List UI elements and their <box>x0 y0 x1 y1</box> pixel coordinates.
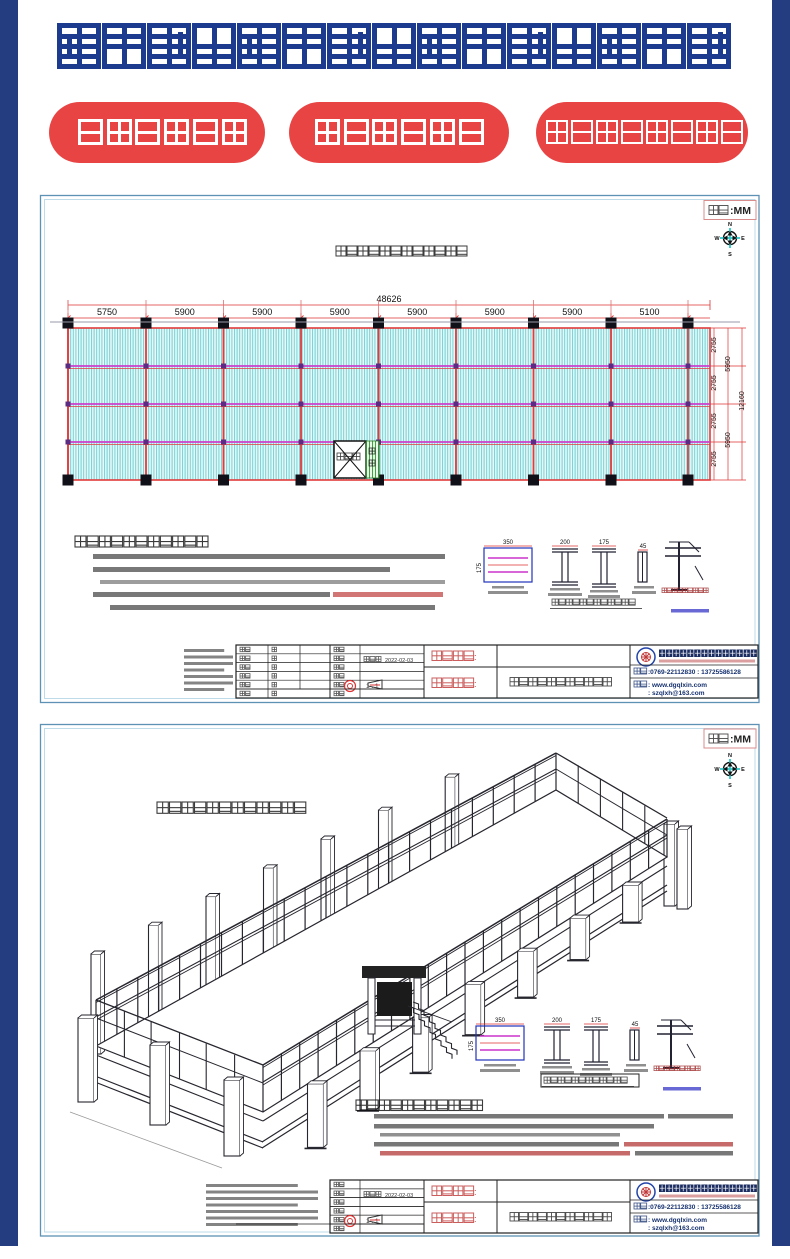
svg-text:5900: 5900 <box>485 307 505 317</box>
svg-text:W: W <box>714 236 720 242</box>
svg-text::MM: :MM <box>730 205 751 217</box>
svg-text:12160: 12160 <box>739 391 746 411</box>
svg-text:175: 175 <box>477 562 483 573</box>
svg-text:: szqlxh@163.com: : szqlxh@163.com <box>648 1225 705 1232</box>
svg-text:2755: 2755 <box>711 413 718 429</box>
svg-text:E: E <box>741 767 745 773</box>
svg-text:S: S <box>728 783 732 789</box>
svg-text::: : <box>474 1187 477 1197</box>
svg-text:S: S <box>728 252 732 258</box>
svg-text:: www.dgqlxin.com: : www.dgqlxin.com <box>648 682 707 689</box>
svg-text:5900: 5900 <box>330 307 350 317</box>
svg-text:E: E <box>741 236 745 242</box>
svg-text::: : <box>474 652 477 662</box>
svg-text:200: 200 <box>552 1018 563 1024</box>
svg-text:: www.dgqlxin.com: : www.dgqlxin.com <box>648 1217 707 1224</box>
svg-text:5950: 5950 <box>725 356 732 372</box>
svg-text::: : <box>474 679 477 689</box>
svg-text:2022-02-03: 2022-02-03 <box>385 1193 413 1199</box>
svg-text:5750: 5750 <box>97 307 117 317</box>
svg-text:5100: 5100 <box>639 307 659 317</box>
svg-text:5900: 5900 <box>562 307 582 317</box>
svg-text:175: 175 <box>591 1018 602 1024</box>
svg-text::0769-22112830 : 13725586128: :0769-22112830 : 13725586128 <box>648 669 741 676</box>
svg-text:N: N <box>728 753 732 759</box>
svg-text::: : <box>474 1214 477 1224</box>
svg-text:5950: 5950 <box>725 432 732 448</box>
svg-text:45: 45 <box>632 1022 639 1028</box>
svg-text:45: 45 <box>640 544 647 550</box>
svg-text::MM: :MM <box>730 734 751 746</box>
svg-text:2755: 2755 <box>711 451 718 467</box>
svg-text:350: 350 <box>495 1018 506 1024</box>
svg-text:5900: 5900 <box>252 307 272 317</box>
svg-text:5900: 5900 <box>175 307 195 317</box>
svg-text:48626: 48626 <box>376 294 401 304</box>
svg-text::0769-22112830 : 13725586128: :0769-22112830 : 13725586128 <box>648 1204 741 1211</box>
svg-text:2755: 2755 <box>711 337 718 353</box>
svg-text:5900: 5900 <box>407 307 427 317</box>
svg-text:350: 350 <box>503 540 514 546</box>
svg-text:W: W <box>714 767 720 773</box>
svg-text:N: N <box>728 222 732 228</box>
svg-text:2755: 2755 <box>711 375 718 391</box>
svg-text:175: 175 <box>469 1040 475 1051</box>
svg-text:: szqlxh@163.com: : szqlxh@163.com <box>648 690 705 697</box>
svg-text:200: 200 <box>560 540 571 546</box>
svg-text:175: 175 <box>599 540 610 546</box>
svg-text:2022-02-03: 2022-02-03 <box>385 658 413 664</box>
